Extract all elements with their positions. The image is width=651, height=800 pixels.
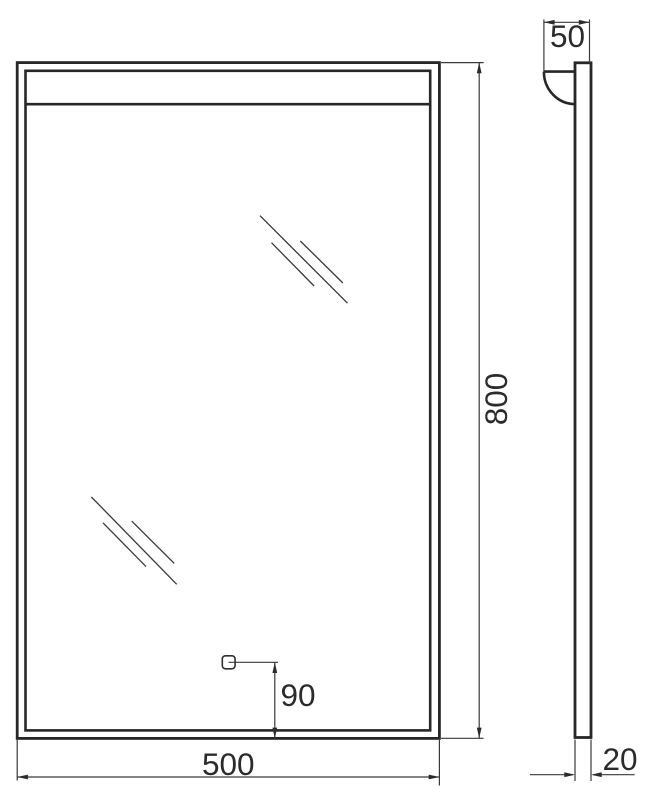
svg-text:90: 90	[280, 677, 315, 713]
svg-text:50: 50	[550, 18, 585, 54]
svg-text:500: 500	[202, 746, 255, 782]
svg-text:800: 800	[478, 373, 514, 426]
svg-text:20: 20	[602, 741, 637, 777]
